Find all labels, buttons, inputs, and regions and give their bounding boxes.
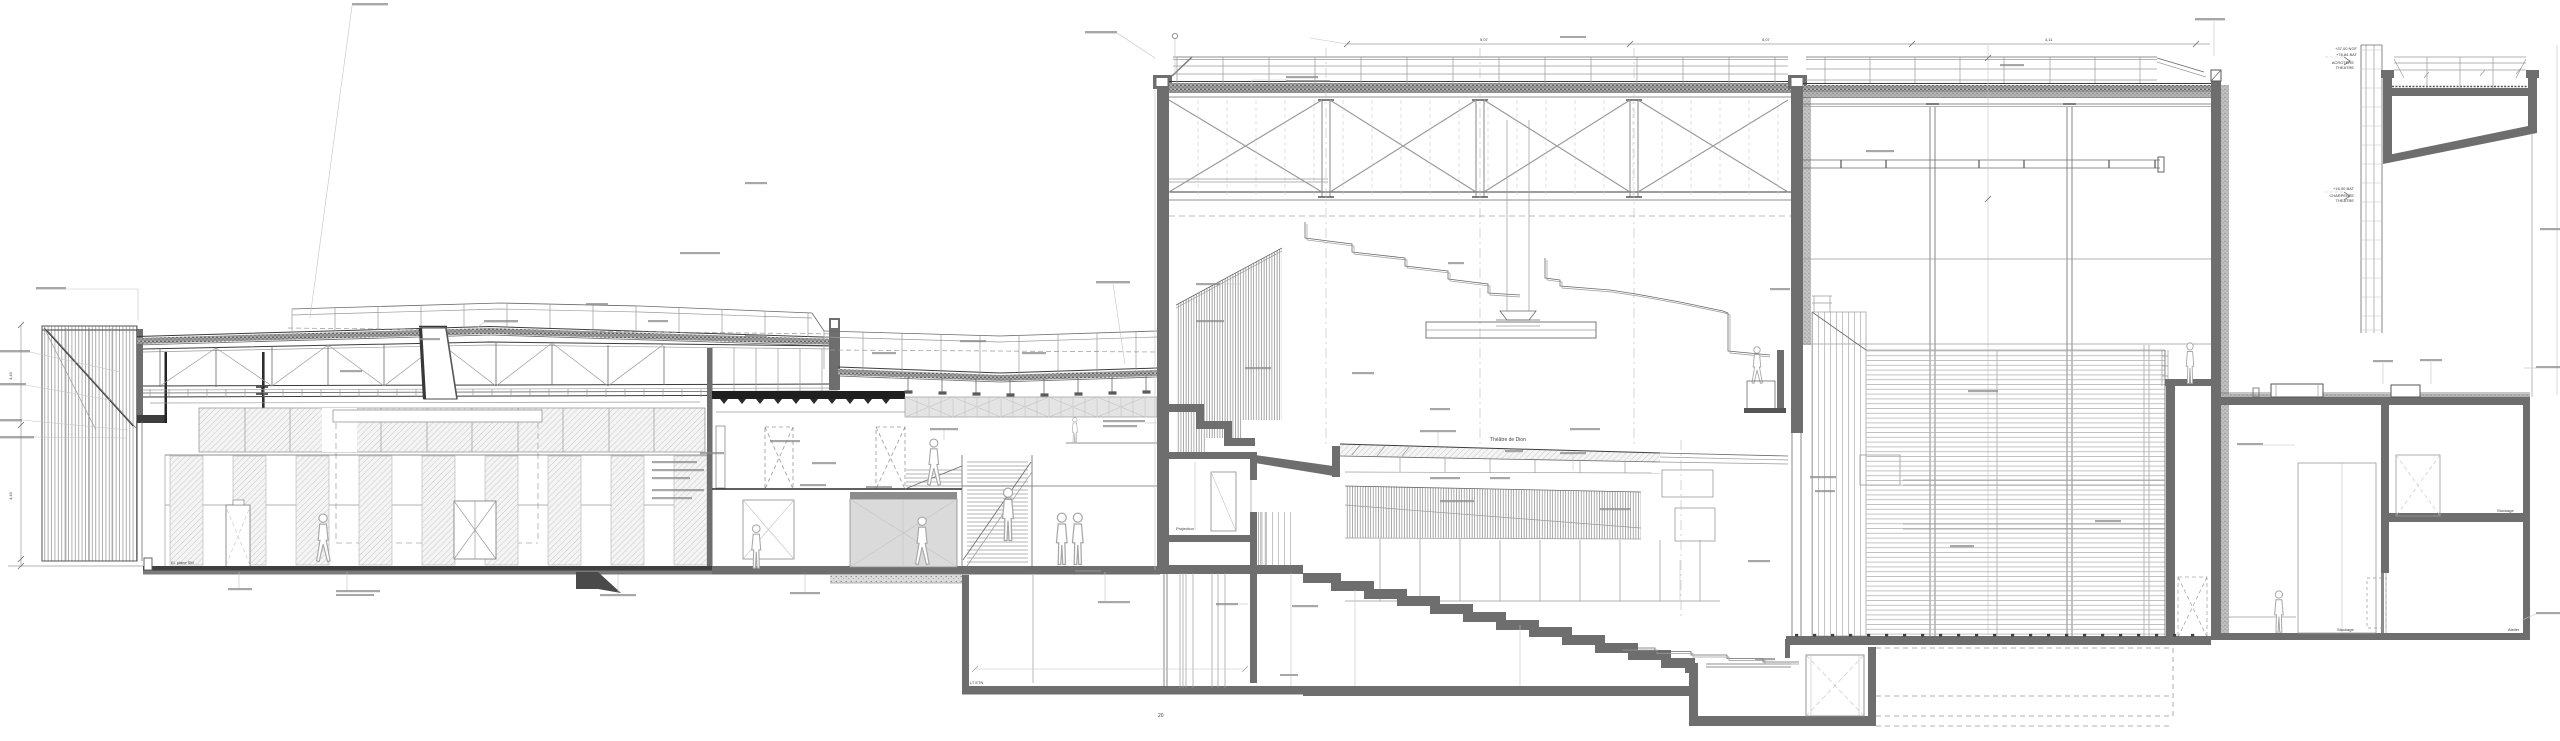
svg-text:THEATRE: THEATRE bbox=[2336, 65, 2355, 70]
svg-text:5,07: 5,07 bbox=[1762, 37, 1771, 42]
svg-text:+37,00 NGF: +37,00 NGF bbox=[2335, 46, 2357, 51]
svg-text:Stockage: Stockage bbox=[2497, 508, 2514, 513]
svg-text:THEATRE: THEATRE bbox=[2336, 198, 2355, 203]
svg-text:El. plane SM: El. plane SM bbox=[171, 560, 194, 565]
svg-text:Atelier: Atelier bbox=[2508, 627, 2520, 632]
svg-text:Stockage: Stockage bbox=[2337, 627, 2354, 632]
svg-text:4,43: 4,43 bbox=[8, 371, 13, 380]
svg-text:+16,00 BAT: +16,00 BAT bbox=[2333, 186, 2354, 191]
svg-text:4,43: 4,43 bbox=[8, 491, 13, 500]
svg-text:20: 20 bbox=[1158, 713, 1164, 719]
svg-text:+76,84 BAT: +76,84 BAT bbox=[2336, 52, 2357, 57]
svg-text:5,07: 5,07 bbox=[1480, 37, 1489, 42]
svg-text:LT ETN: LT ETN bbox=[970, 680, 984, 685]
svg-text:4,11: 4,11 bbox=[2045, 37, 2053, 42]
svg-text:Projection: Projection bbox=[1176, 526, 1194, 531]
svg-text:Théâtre de Dion: Théâtre de Dion bbox=[1490, 437, 1526, 443]
